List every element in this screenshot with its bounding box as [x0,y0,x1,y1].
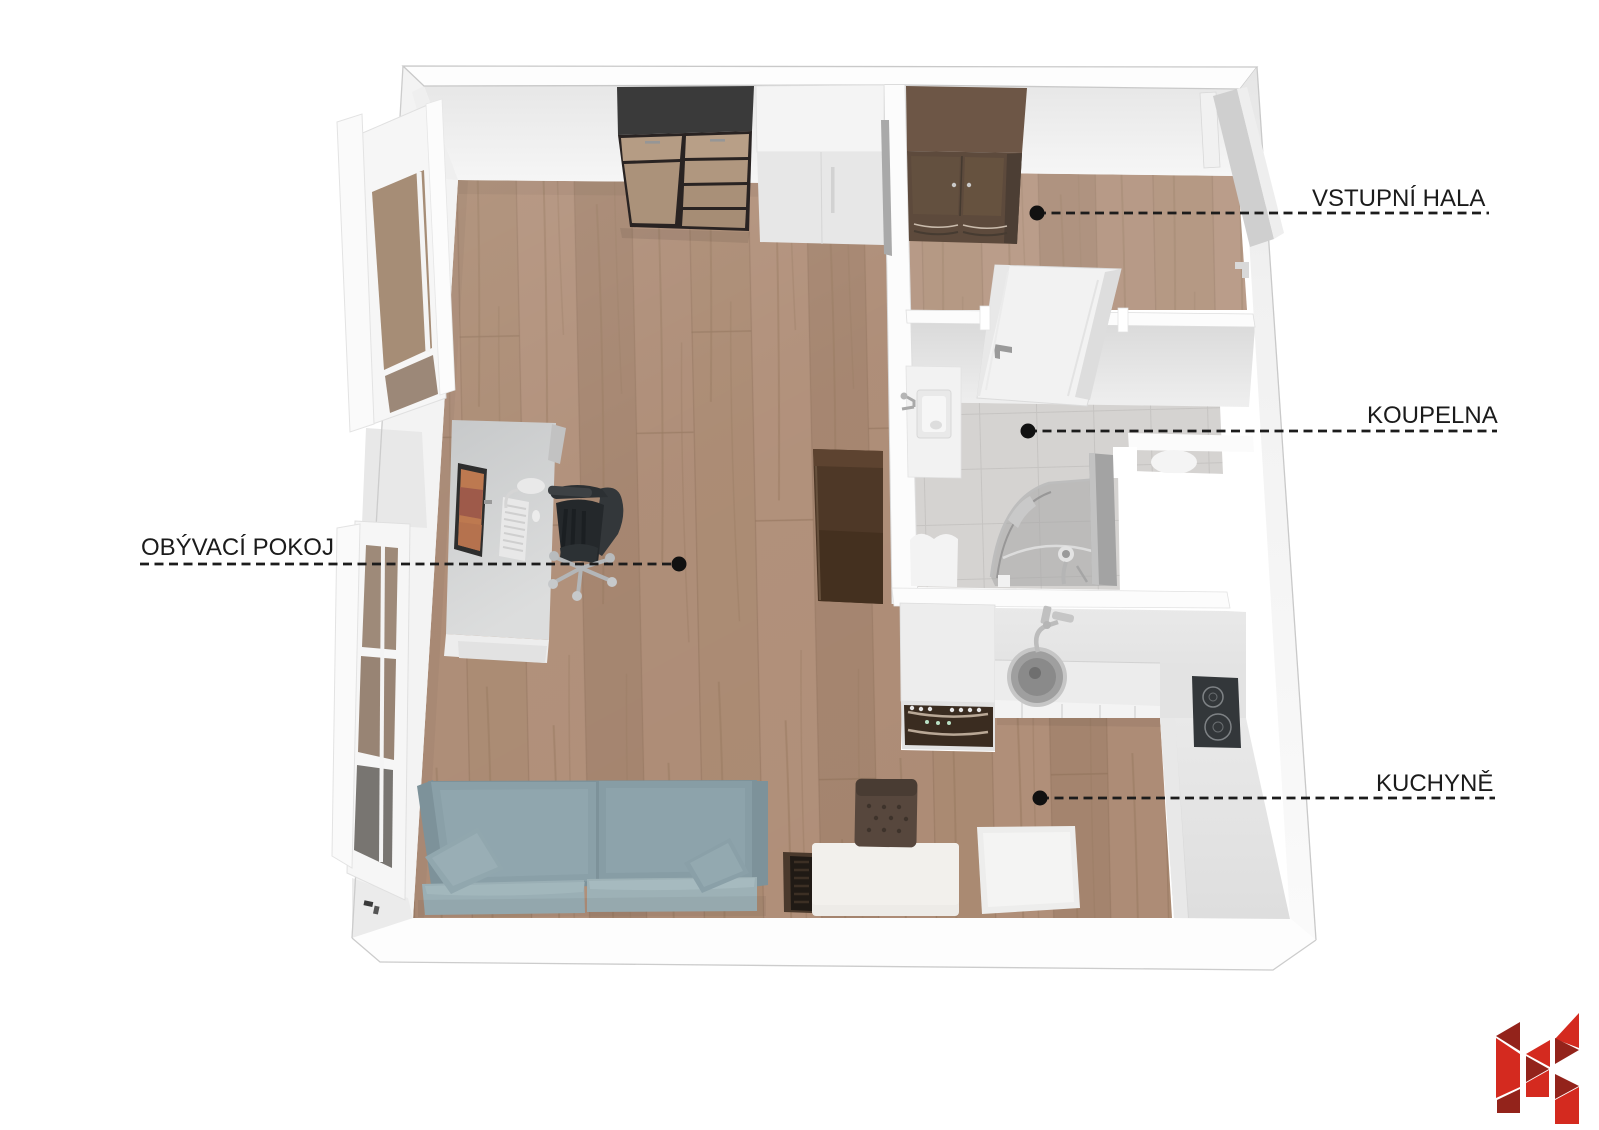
svg-text:KUCHYNĚ: KUCHYNĚ [1376,770,1493,797]
svg-text:VSTUPNÍ HALA: VSTUPNÍ HALA [1312,185,1485,212]
svg-text:KOUPELNA: KOUPELNA [1367,402,1498,429]
svg-text:OBÝVACÍ POKOJ: OBÝVACÍ POKOJ [141,534,334,561]
